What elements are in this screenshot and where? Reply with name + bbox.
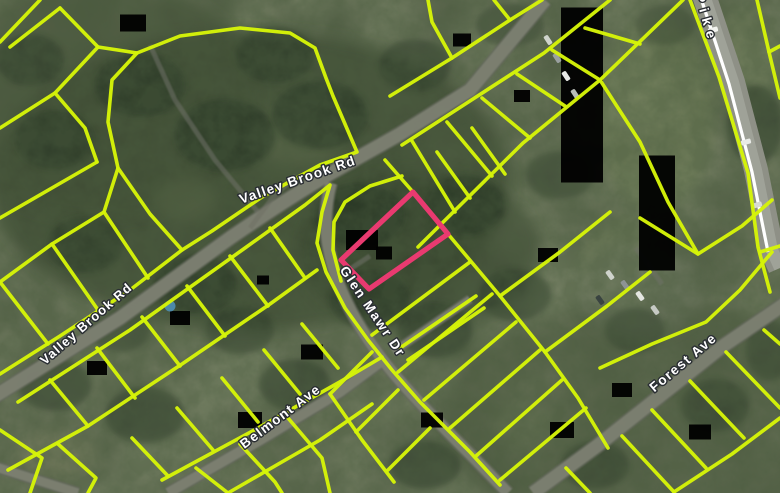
aerial-parcel-map[interactable]: Valley Brook RdValley Brook RdGlen Mawr … <box>0 0 780 493</box>
map-canvas[interactable]: Valley Brook RdValley Brook RdGlen Mawr … <box>0 0 780 493</box>
